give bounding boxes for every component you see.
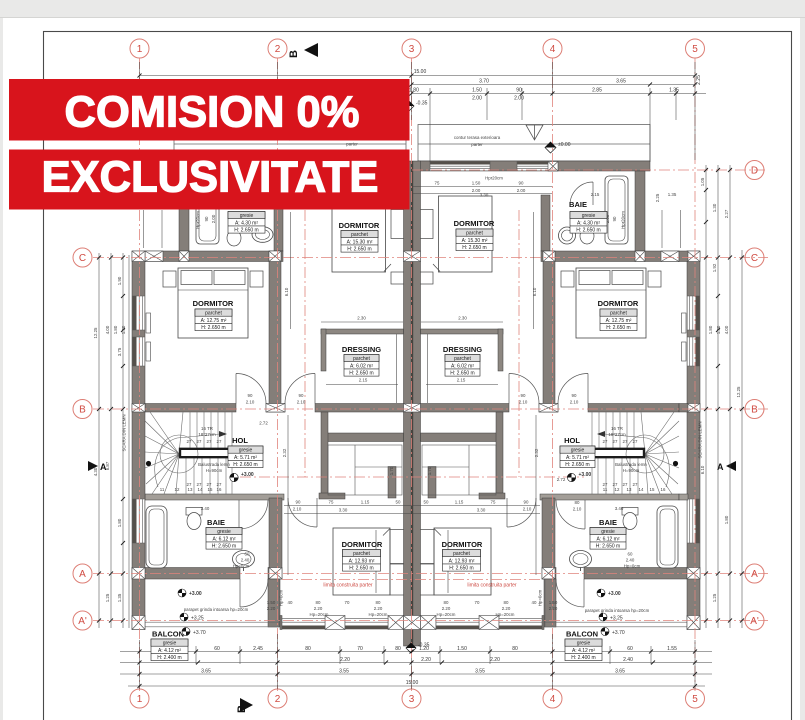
svg-text:1.50: 1.50 <box>121 325 126 334</box>
svg-text:BALCON: BALCON <box>566 630 598 639</box>
svg-text:4.00: 4.00 <box>724 325 729 334</box>
svg-text:parchet: parchet <box>610 311 627 317</box>
svg-text:11: 11 <box>603 487 608 492</box>
svg-text:parchet: parchet <box>205 311 222 317</box>
svg-text:1.15: 1.15 <box>361 500 370 505</box>
svg-text:COMISION 0%: COMISION 0% <box>65 89 360 137</box>
svg-text:15: 15 <box>650 487 655 492</box>
svg-text:5: 5 <box>692 44 698 55</box>
svg-text:70: 70 <box>475 600 480 605</box>
svg-text:A: 4.30 m²: A: 4.30 m² <box>235 220 258 226</box>
svg-text:2.10: 2.10 <box>570 400 579 405</box>
svg-text:Hpr20cm: Hpr20cm <box>621 211 626 229</box>
svg-text:gresie: gresie <box>582 213 596 219</box>
svg-text:2.20: 2.20 <box>421 657 431 663</box>
svg-text:2.20: 2.20 <box>267 606 276 611</box>
svg-text:2.72: 2.72 <box>557 477 566 482</box>
svg-text:DORMITOR: DORMITOR <box>442 540 483 549</box>
svg-text:2.30: 2.30 <box>458 316 467 321</box>
svg-text:H: 2.650 m: H: 2.650 m <box>596 544 620 550</box>
svg-text:1.30: 1.30 <box>716 325 721 334</box>
svg-text:2.30: 2.30 <box>357 316 366 321</box>
svg-text:27: 27 <box>613 439 618 444</box>
svg-text:80: 80 <box>504 600 509 605</box>
svg-text:2.10: 2.10 <box>297 400 306 405</box>
svg-text:70: 70 <box>345 600 350 605</box>
svg-text:90: 90 <box>612 216 617 221</box>
svg-text:H: 2.650 m: H: 2.650 m <box>347 247 371 253</box>
svg-text:gresie: gresie <box>601 529 615 535</box>
svg-text:parter: parter <box>471 142 483 147</box>
svg-text:B: B <box>288 50 300 58</box>
svg-text:3.65: 3.65 <box>616 79 626 85</box>
svg-text:A: 15.30 m²: A: 15.30 m² <box>347 239 373 245</box>
svg-text:A: 12.75 m²: A: 12.75 m² <box>201 318 227 324</box>
svg-text:parchet: parchet <box>353 356 370 362</box>
svg-text:90: 90 <box>296 500 301 505</box>
svg-text:H=90cm: H=90cm <box>623 468 640 473</box>
svg-text:gresie: gresie <box>163 641 177 647</box>
svg-text:1.50: 1.50 <box>457 646 467 652</box>
svg-text:90: 90 <box>519 181 524 186</box>
svg-text:27: 27 <box>207 439 212 444</box>
svg-text:80: 80 <box>575 500 580 505</box>
svg-text:A: 6.12 m²: A: 6.12 m² <box>212 536 235 542</box>
svg-text:80: 80 <box>316 600 321 605</box>
svg-text:Hp=0cm: Hp=0cm <box>624 564 641 569</box>
svg-text:A: 12.93 m²: A: 12.93 m² <box>349 558 375 564</box>
svg-text:SCARA DIN LEMN: SCARA DIN LEMN <box>698 421 703 458</box>
svg-text:18*27cm: 18*27cm <box>608 432 626 437</box>
svg-text:6.10: 6.10 <box>700 465 705 474</box>
svg-text:80: 80 <box>305 646 311 652</box>
svg-text:6.10: 6.10 <box>284 287 289 296</box>
svg-text:+3.00: +3.00 <box>579 472 592 478</box>
svg-text:2.10: 2.10 <box>523 507 532 512</box>
svg-text:14: 14 <box>198 487 203 492</box>
svg-text:1.50: 1.50 <box>472 181 481 186</box>
svg-text:Hpr20cm: Hpr20cm <box>196 211 201 229</box>
svg-text:Hp=0cm: Hp=0cm <box>279 589 284 606</box>
svg-text:A: 5.71 m²: A: 5.71 m² <box>566 455 589 461</box>
svg-text:limita construita parter: limita construita parter <box>467 583 517 589</box>
svg-text:H: 2.650 m: H: 2.650 m <box>576 228 600 234</box>
svg-text:2.00: 2.00 <box>514 96 524 102</box>
svg-text:90: 90 <box>516 88 522 94</box>
svg-text:90: 90 <box>524 500 529 505</box>
svg-text:C: C <box>751 253 758 264</box>
svg-text:3.55: 3.55 <box>475 669 485 675</box>
svg-text:2.20: 2.20 <box>442 606 451 611</box>
svg-text:2.85: 2.85 <box>592 88 602 94</box>
svg-text:±0.00: ±0.00 <box>558 142 571 148</box>
svg-text:16 TR: 16 TR <box>611 426 623 431</box>
svg-text:16: 16 <box>661 487 666 492</box>
svg-text:12.25: 12.25 <box>736 386 741 398</box>
svg-text:H: 2.650 m: H: 2.650 m <box>462 245 486 251</box>
svg-text:3.40: 3.40 <box>201 506 210 511</box>
svg-text:H: 2.650 m: H: 2.650 m <box>233 462 257 468</box>
svg-text:D: D <box>751 166 758 177</box>
svg-text:2.32: 2.32 <box>534 448 539 457</box>
svg-text:A: A <box>79 569 86 580</box>
svg-text:3.40: 3.40 <box>615 506 624 511</box>
svg-text:2.20: 2.20 <box>314 606 323 611</box>
svg-text:2.15: 2.15 <box>591 192 600 197</box>
svg-text:80: 80 <box>395 646 401 652</box>
svg-text:1.25: 1.25 <box>105 593 110 602</box>
svg-text:1.55: 1.55 <box>667 646 677 652</box>
svg-text:+3.00: +3.00 <box>608 591 621 597</box>
svg-text:H: 2.650 m: H: 2.650 m <box>565 462 589 468</box>
svg-text:A: 15.30 m²: A: 15.30 m² <box>462 238 488 244</box>
svg-text:80: 80 <box>512 646 518 652</box>
svg-text:1.90: 1.90 <box>117 276 122 285</box>
svg-text:1.80: 1.80 <box>113 325 118 334</box>
svg-text:A: 5.71 m²: A: 5.71 m² <box>234 455 257 461</box>
svg-text:1: 1 <box>137 694 143 705</box>
svg-text:16: 16 <box>217 487 222 492</box>
svg-text:60: 60 <box>627 646 633 652</box>
svg-text:75: 75 <box>329 500 334 505</box>
svg-text:50: 50 <box>424 500 429 505</box>
svg-text:-0.35: -0.35 <box>418 643 430 649</box>
svg-text:2.45: 2.45 <box>253 646 263 652</box>
svg-text:1.35: 1.35 <box>117 593 122 602</box>
svg-text:BAIE: BAIE <box>207 518 225 527</box>
svg-text:70: 70 <box>357 646 363 652</box>
svg-text:H: 2.400 m: H: 2.400 m <box>157 655 181 661</box>
svg-text:parchet: parchet <box>353 551 370 557</box>
svg-text:3.70: 3.70 <box>479 79 489 85</box>
svg-text:H: 2.650 m: H: 2.650 m <box>349 371 373 377</box>
svg-text:12.25: 12.25 <box>93 327 98 339</box>
svg-text:A: 4.12 m²: A: 4.12 m² <box>572 648 595 654</box>
svg-text:2.27: 2.27 <box>724 209 729 218</box>
svg-text:H: 2.400 m: H: 2.400 m <box>571 655 595 661</box>
svg-text:2.25: 2.25 <box>696 75 702 85</box>
svg-text:90: 90 <box>572 393 577 398</box>
svg-text:1.70: 1.70 <box>427 466 432 475</box>
svg-text:2.20: 2.20 <box>340 657 350 663</box>
svg-text:1: 1 <box>137 44 143 55</box>
svg-text:DORMITOR: DORMITOR <box>193 299 234 308</box>
svg-text:2.00: 2.00 <box>211 214 216 223</box>
svg-text:13: 13 <box>188 487 193 492</box>
svg-text:3.75: 3.75 <box>117 347 122 356</box>
svg-text:Balustrada lemn: Balustrada lemn <box>198 462 230 467</box>
svg-text:2.40: 2.40 <box>241 558 250 563</box>
svg-text:A: 12.93 m²: A: 12.93 m² <box>449 558 475 564</box>
svg-text:90: 90 <box>521 393 526 398</box>
svg-text:2.10: 2.10 <box>573 507 582 512</box>
svg-text:BALCON: BALCON <box>152 630 184 639</box>
svg-text:parchet: parchet <box>453 551 470 557</box>
svg-text:27: 27 <box>603 439 608 444</box>
svg-text:B: B <box>751 405 758 416</box>
svg-text:27: 27 <box>197 439 202 444</box>
svg-text:1.15: 1.15 <box>455 500 464 505</box>
svg-text:B: B <box>79 405 86 416</box>
svg-text:H=90cm: H=90cm <box>206 468 223 473</box>
svg-text:A': A' <box>750 616 759 627</box>
svg-text:18*27cm: 18*27cm <box>198 432 216 437</box>
svg-text:H: 2.650 m: H: 2.650 m <box>201 325 225 331</box>
svg-text:A: 12.75 m²: A: 12.75 m² <box>606 318 632 324</box>
svg-text:H: 2.650 m: H: 2.650 m <box>212 544 236 550</box>
svg-text:14: 14 <box>639 487 644 492</box>
svg-text:HOL: HOL <box>232 436 248 445</box>
svg-text:13: 13 <box>627 487 632 492</box>
svg-text:A: 6.12 m²: A: 6.12 m² <box>596 536 619 542</box>
svg-text:2.15: 2.15 <box>359 378 368 383</box>
svg-text:Hp=20cm: Hp=20cm <box>496 612 515 617</box>
svg-text:80: 80 <box>444 600 449 605</box>
svg-text:2.10: 2.10 <box>246 400 255 405</box>
svg-text:2.40: 2.40 <box>623 657 633 663</box>
svg-text:parchet: parchet <box>454 356 471 362</box>
svg-text:1.25: 1.25 <box>712 593 717 602</box>
svg-text:27: 27 <box>623 439 628 444</box>
svg-text:A: A <box>751 569 758 580</box>
svg-text:2.10: 2.10 <box>293 507 302 512</box>
svg-text:Hp=20cm: Hp=20cm <box>310 612 329 617</box>
svg-text:Hp=0cm: Hp=0cm <box>538 589 543 606</box>
svg-text:2.15: 2.15 <box>457 378 466 383</box>
svg-text:parapet grinda intoarsa hp=20c: parapet grinda intoarsa hp=20cm <box>585 608 650 613</box>
svg-text:2.20: 2.20 <box>374 606 383 611</box>
svg-text:SCARA DIN LEMN: SCARA DIN LEMN <box>122 414 127 451</box>
svg-text:15.00: 15.00 <box>406 680 419 686</box>
svg-text:parchet: parchet <box>466 231 483 237</box>
svg-text:1.80: 1.80 <box>724 515 729 524</box>
svg-text:1.05: 1.05 <box>700 177 705 186</box>
svg-text:Hp=20cm: Hp=20cm <box>437 612 456 617</box>
svg-text:2.20: 2.20 <box>502 606 511 611</box>
svg-text:3.55: 3.55 <box>339 669 349 675</box>
svg-text:+3.70: +3.70 <box>612 630 625 636</box>
svg-text:2.20: 2.20 <box>549 606 558 611</box>
svg-text:1.30: 1.30 <box>712 203 717 212</box>
svg-text:gresie: gresie <box>571 448 585 454</box>
svg-text:A: 6.02 m²: A: 6.02 m² <box>350 363 373 369</box>
svg-text:40: 40 <box>288 600 293 605</box>
svg-text:90: 90 <box>248 393 253 398</box>
svg-text:80: 80 <box>376 600 381 605</box>
svg-text:1.80: 1.80 <box>708 325 713 334</box>
svg-text:A: 4.12 m²: A: 4.12 m² <box>158 648 181 654</box>
svg-text:A: 4.30 m²: A: 4.30 m² <box>577 220 600 226</box>
svg-text:3.65: 3.65 <box>201 669 211 675</box>
svg-text:2.40: 2.40 <box>626 558 635 563</box>
svg-text:3: 3 <box>409 44 415 55</box>
svg-text:2.20: 2.20 <box>490 657 500 663</box>
svg-text:50: 50 <box>396 500 401 505</box>
svg-text:6.87: 6.87 <box>105 461 110 470</box>
svg-text:EXCLUSIVITATE: EXCLUSIVITATE <box>42 153 379 201</box>
svg-text:parter: parter <box>346 142 358 147</box>
svg-text:11: 11 <box>160 487 165 492</box>
svg-text:+3.25: +3.25 <box>610 616 623 622</box>
svg-text:75: 75 <box>491 500 496 505</box>
svg-text:5: 5 <box>692 694 698 705</box>
svg-text:1.35: 1.35 <box>669 88 679 94</box>
svg-text:H: 2.650 m: H: 2.650 m <box>606 325 630 331</box>
svg-text:+3.00: +3.00 <box>241 472 254 478</box>
svg-text:A: 6.02 m²: A: 6.02 m² <box>451 363 474 369</box>
svg-text:3: 3 <box>409 694 415 705</box>
svg-text:15.00: 15.00 <box>414 69 427 75</box>
svg-text:4: 4 <box>550 44 556 55</box>
svg-text:4.30: 4.30 <box>93 467 98 476</box>
svg-text:27: 27 <box>187 439 192 444</box>
svg-text:H: 2.650 m: H: 2.650 m <box>349 566 373 572</box>
svg-text:1.50: 1.50 <box>267 600 276 605</box>
svg-text:DORMITOR: DORMITOR <box>454 219 495 228</box>
svg-text:27: 27 <box>633 439 638 444</box>
svg-text:1.35: 1.35 <box>668 192 677 197</box>
svg-text:DORMITOR: DORMITOR <box>342 540 383 549</box>
svg-text:3.30: 3.30 <box>480 193 489 198</box>
svg-text:3.30: 3.30 <box>339 508 348 513</box>
svg-text:2.25: 2.25 <box>655 193 660 202</box>
svg-text:60: 60 <box>628 552 633 557</box>
svg-text:16 TR: 16 TR <box>201 426 213 431</box>
svg-text:C: C <box>79 253 86 264</box>
svg-text:gresie: gresie <box>240 213 254 219</box>
svg-text:15: 15 <box>208 487 213 492</box>
svg-text:gresie: gresie <box>239 448 253 454</box>
svg-text:-0.35: -0.35 <box>416 101 428 107</box>
svg-text:limita construita parter: limita construita parter <box>323 583 373 589</box>
svg-text:2: 2 <box>275 694 281 705</box>
svg-text:1.50: 1.50 <box>549 600 558 605</box>
svg-text:60: 60 <box>245 552 250 557</box>
svg-text:4.00: 4.00 <box>105 325 110 334</box>
svg-text:+3.25: +3.25 <box>191 616 204 622</box>
svg-text:12: 12 <box>175 487 180 492</box>
svg-text:2: 2 <box>275 44 281 55</box>
svg-text:H: 2.650 m: H: 2.650 m <box>450 371 474 377</box>
svg-text:DRESSING: DRESSING <box>443 345 482 354</box>
svg-text:DORMITOR: DORMITOR <box>598 299 639 308</box>
svg-text:2.00: 2.00 <box>472 96 482 102</box>
svg-text:BAIE: BAIE <box>599 518 617 527</box>
svg-text:H: 2.650 m: H: 2.650 m <box>234 228 258 234</box>
svg-text:gresie: gresie <box>577 641 591 647</box>
svg-text:1.80: 1.80 <box>409 88 419 94</box>
svg-text:1.50: 1.50 <box>472 88 482 94</box>
svg-text:Balustrada lemn: Balustrada lemn <box>615 462 647 467</box>
svg-text:2.72: 2.72 <box>259 421 268 426</box>
svg-text:B: B <box>236 705 248 713</box>
svg-text:90: 90 <box>204 216 209 221</box>
svg-text:Hp=20cm: Hp=20cm <box>369 612 388 617</box>
svg-text:Hpr20cm: Hpr20cm <box>485 176 503 181</box>
svg-text:27: 27 <box>633 482 638 487</box>
svg-text:H: 2.650 m: H: 2.650 m <box>449 566 473 572</box>
svg-text:1.70: 1.70 <box>389 466 394 475</box>
svg-text:1.80: 1.80 <box>117 518 122 527</box>
svg-text:+3.70: +3.70 <box>193 630 206 636</box>
svg-text:gresie: gresie <box>217 529 231 535</box>
svg-text:27: 27 <box>217 439 222 444</box>
svg-text:2.32: 2.32 <box>282 448 287 457</box>
svg-text:A': A' <box>78 616 87 627</box>
svg-text:40: 40 <box>532 600 537 605</box>
svg-text:1.92: 1.92 <box>712 263 717 272</box>
svg-text:90: 90 <box>299 393 304 398</box>
svg-text:BAIE: BAIE <box>569 200 587 209</box>
svg-text:parchet: parchet <box>351 232 368 238</box>
svg-text:60: 60 <box>214 646 220 652</box>
svg-text:DRESSING: DRESSING <box>342 345 381 354</box>
svg-text:DORMITOR: DORMITOR <box>339 221 380 230</box>
svg-text:contur terasa exterioara: contur terasa exterioara <box>454 135 501 140</box>
svg-text:parapet grinda intoarsa hp=20c: parapet grinda intoarsa hp=20cm <box>184 607 249 612</box>
svg-text:Hp=0cm: Hp=0cm <box>233 564 250 569</box>
svg-text:4: 4 <box>550 694 556 705</box>
svg-text:2.10: 2.10 <box>519 400 528 405</box>
svg-text:2.00: 2.00 <box>517 188 526 193</box>
svg-text:75: 75 <box>435 181 440 186</box>
svg-text:HOL: HOL <box>564 436 580 445</box>
svg-text:3.30: 3.30 <box>477 508 486 513</box>
svg-text:+3.00: +3.00 <box>189 591 202 597</box>
svg-text:6.10: 6.10 <box>532 287 537 296</box>
svg-text:12: 12 <box>615 487 620 492</box>
svg-text:3.65: 3.65 <box>615 669 625 675</box>
